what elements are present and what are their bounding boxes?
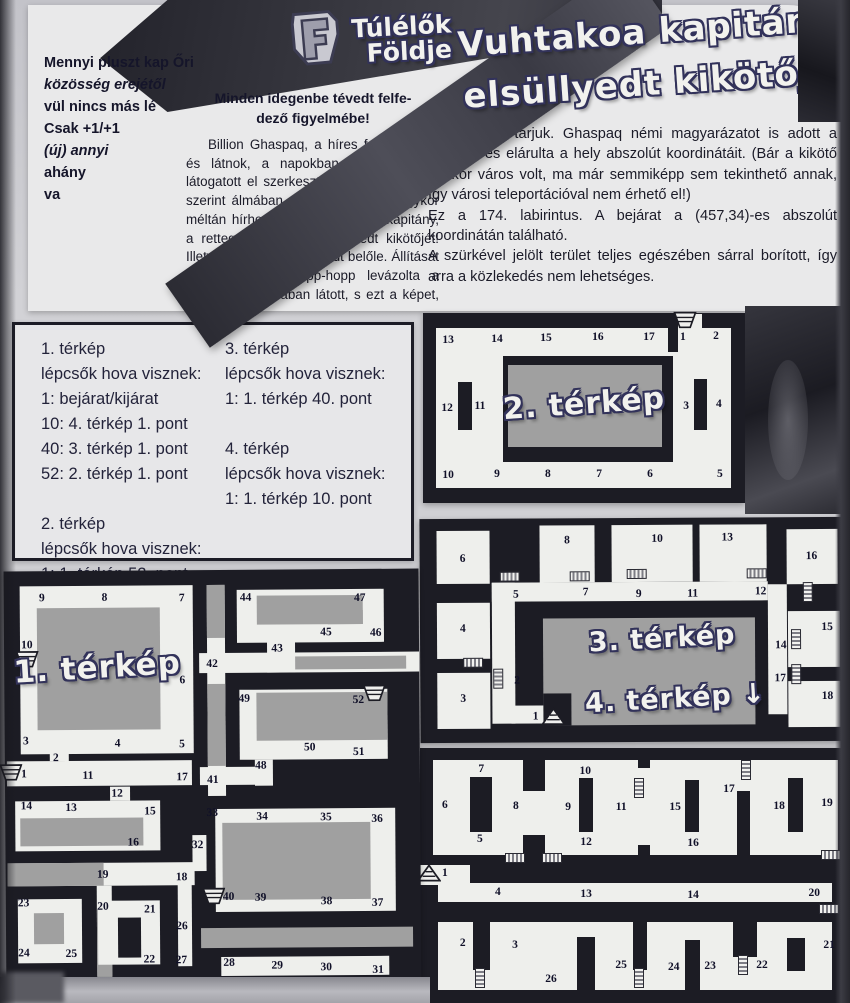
map-point-number: 20 — [808, 887, 820, 899]
legend-line — [225, 412, 386, 437]
stairs-bucket-icon — [363, 685, 386, 702]
page-bottom-edge — [0, 977, 430, 1003]
map-point-number: 26 — [545, 973, 557, 985]
map-point-number: 3 — [683, 400, 689, 412]
map-wall-rect — [458, 382, 472, 430]
map-point-number: 10 — [21, 639, 33, 651]
map-point-number: 9 — [636, 588, 642, 600]
map-point-number: 5 — [477, 833, 483, 845]
door-marker-icon — [634, 778, 644, 798]
legend-line: lépcsők hova visznek: — [225, 362, 386, 387]
map-point-number: 16 — [806, 550, 818, 562]
map-point-number: 7 — [583, 586, 589, 598]
door-marker-icon — [634, 968, 644, 988]
map-point-number: 17 — [723, 783, 735, 795]
map-mud-rect — [222, 822, 371, 900]
map-point-number: 26 — [176, 920, 188, 932]
map-point-number: 14 — [491, 333, 503, 345]
qa-fragment-line: (új) annyi — [44, 140, 196, 162]
map-mud-rect — [201, 927, 413, 949]
logo-wordmark: Túlélők Földje — [351, 11, 453, 66]
map-wall-rect — [694, 379, 707, 430]
door-marker-icon — [741, 760, 751, 780]
map-point-number: 33 — [206, 807, 218, 819]
map-floor-rect — [492, 581, 768, 601]
door-marker-icon — [542, 853, 562, 863]
door-marker-icon — [493, 669, 503, 689]
map-point-number: 25 — [66, 948, 78, 960]
map-mud-rect — [34, 913, 64, 944]
map-point-number: 3 — [512, 939, 518, 951]
map-point-number: 16 — [687, 837, 699, 849]
map-point-number: 4 — [716, 398, 722, 410]
map-point-number: 3 — [23, 735, 29, 747]
qa-fragment-line: ahány — [44, 162, 196, 184]
map-point-number: 12 — [441, 402, 453, 414]
door-marker-icon — [627, 569, 647, 579]
map-point-number: 27 — [176, 954, 188, 966]
map-point-number: 3 — [460, 693, 466, 705]
stairs-pyramid-icon — [417, 864, 441, 882]
door-marker-icon — [791, 629, 801, 649]
map-point-number: 18 — [176, 871, 188, 883]
article-paragraph: A szürkével jelölt terület teljes egészé… — [428, 246, 837, 287]
map-point-number: 51 — [353, 746, 365, 758]
map-mud-rect — [327, 610, 362, 624]
map-point-number: 31 — [372, 964, 384, 976]
map-point-number: 13 — [65, 802, 77, 814]
legend-column-2: 3. térképlépcsők hova visznek:1: 1. térk… — [225, 337, 386, 512]
door-marker-icon — [738, 955, 748, 975]
map-point-number: 38 — [321, 895, 333, 907]
map-point-number: 39 — [255, 892, 267, 904]
map-wall-rect — [118, 918, 142, 958]
page-right-edge — [835, 0, 850, 1003]
map-point-number: 6 — [647, 468, 653, 480]
map-wall-rect — [473, 917, 490, 970]
map-floor-rect — [177, 870, 192, 966]
map-wall-rect — [579, 778, 593, 832]
map-point-number: 40 — [223, 891, 235, 903]
page-edge-smudge — [768, 360, 808, 480]
legend-line: lépcsők hova visznek: — [41, 362, 202, 387]
map-point-number: 15 — [821, 621, 833, 633]
door-marker-icon — [463, 658, 483, 668]
map-point-number: 20 — [97, 901, 109, 913]
map-point-number: 49 — [238, 693, 250, 705]
map-point-number: 37 — [372, 897, 384, 909]
legend-line: 40: 3. térkép 1. pont — [41, 437, 202, 462]
map-point-number: 18 — [822, 690, 834, 702]
map-point-number: 14 — [21, 800, 33, 812]
map-point-number: 35 — [320, 811, 332, 823]
map-point-number: 15 — [540, 332, 552, 344]
map-point-number: 23 — [704, 960, 716, 972]
map-point-number: 11 — [475, 400, 486, 412]
map-point-number: 13 — [580, 888, 592, 900]
door-marker-icon — [803, 582, 813, 602]
map-point-number: 1 — [680, 331, 686, 343]
map-point-number: 9 — [39, 592, 45, 604]
map-point-number: 24 — [18, 947, 30, 959]
map-point-number: 48 — [255, 760, 267, 772]
map-point-number: 21 — [144, 903, 156, 915]
map-point-number: 21 — [823, 939, 835, 951]
map-1: 1234567891011121314151617181920212223242… — [4, 569, 422, 1002]
map-point-number: 23 — [18, 897, 30, 909]
map-point-number: 1 — [442, 867, 448, 879]
map-floor-rect — [510, 791, 545, 834]
map-point-number: 1 — [533, 711, 539, 723]
map-wall-rect — [577, 937, 595, 990]
legend-line: 1. térkép — [41, 337, 202, 362]
map-floor-rect — [7, 760, 192, 786]
map-point-number: 28 — [223, 957, 235, 969]
map-point-number: 47 — [354, 592, 366, 604]
legend-line: 1: 1. térkép 40. pont — [225, 387, 386, 412]
tf-monogram-icon — [278, 2, 353, 72]
map-point-number: 41 — [207, 774, 219, 786]
map-point-number: 7 — [478, 763, 484, 775]
map-floor-rect — [221, 956, 389, 977]
qa-fragment-line: va — [44, 184, 196, 206]
map-point-number: 5 — [179, 738, 185, 750]
map-point-number: 10 — [651, 533, 663, 545]
qa-fragment: Mennyi pluszt kap Őriközösség erejétőlvü… — [44, 52, 196, 302]
map-wall-rect — [470, 777, 492, 832]
map-point-number: 15 — [669, 801, 681, 813]
legend-line: 1: bejárat/kijárat — [41, 387, 202, 412]
map-wall-rect — [787, 938, 805, 971]
legend-line: 4. térkép — [225, 437, 386, 462]
door-marker-icon — [500, 572, 520, 582]
map-point-number: 15 — [144, 805, 156, 817]
map-point-number: 10 — [579, 765, 591, 777]
map-point-number: 1 — [21, 768, 27, 780]
map-point-number: 19 — [821, 797, 833, 809]
map-point-number: 2 — [53, 752, 59, 764]
map-point-number: 16 — [592, 331, 604, 343]
map-point-number: 13 — [442, 334, 454, 346]
logo-line2: Földje — [366, 36, 453, 65]
legend-line: 3. térkép — [225, 337, 386, 362]
map-point-number: 19 — [97, 869, 109, 881]
map-point-number: 14 — [775, 639, 787, 651]
map-point-number: 14 — [687, 889, 699, 901]
legend-line — [41, 487, 202, 512]
map-point-number: 4 — [460, 623, 466, 635]
map-mud-rect — [207, 585, 225, 638]
map-point-number: 8 — [513, 800, 519, 812]
qa-fragment-line: vül nincs más lé — [44, 96, 196, 118]
intro-line1: Minden idegenbe tévedt felfe- — [180, 88, 446, 108]
legend-line: lépcsők hova visznek: — [41, 537, 202, 562]
door-marker-icon — [747, 568, 767, 578]
qa-fragment-line: közösség erejétől — [44, 74, 196, 96]
stairs-pyramid-icon — [541, 708, 565, 726]
map-point-number: 2 — [713, 330, 719, 342]
map-point-number: 16 — [127, 837, 139, 849]
scanned-magazine-page: { "colors": { "paper": "#c9c9cf", "panel… — [0, 0, 850, 1003]
page-left-edge — [0, 0, 16, 1003]
map-point-number: 32 — [192, 839, 204, 851]
door-marker-icon — [475, 968, 485, 988]
map-point-number: 11 — [687, 588, 698, 600]
map-point-number: 2 — [514, 675, 520, 687]
map-point-number: 52 — [353, 694, 365, 706]
door-marker-icon — [569, 571, 589, 581]
map-point-number: 6 — [460, 553, 466, 565]
map-point-number: 5 — [717, 468, 723, 480]
map-point-number: 46 — [370, 627, 382, 639]
legend-line: 1: 1. térkép 10. pont — [225, 487, 386, 512]
map-point-number: 24 — [668, 961, 680, 973]
door-marker-icon — [505, 853, 525, 863]
map-point-number: 50 — [304, 741, 316, 753]
map-mud-rect — [287, 656, 406, 670]
map-point-number: 10 — [442, 469, 454, 481]
map-point-number: 25 — [615, 959, 627, 971]
map-wall-rect — [788, 778, 803, 832]
legend-box: 1. térképlépcsők hova visznek:1: bejárat… — [12, 322, 414, 561]
map-point-number: 12 — [755, 585, 767, 597]
article-paragraph: Ez a 174. labirintus. A bejárat a (457,3… — [428, 206, 837, 247]
map-mud-rect — [8, 863, 104, 886]
legend-line: lépcsők hova visznek: — [225, 462, 386, 487]
map-point-number: 8 — [102, 592, 108, 604]
map-point-number: 45 — [320, 626, 332, 638]
door-marker-icon — [791, 664, 801, 684]
map-point-number: 8 — [564, 534, 570, 546]
map-wall-rect — [633, 922, 647, 970]
map-floor-rect — [492, 582, 516, 723]
map-point-number: 29 — [271, 960, 283, 972]
map-point-number: 30 — [320, 961, 332, 973]
map-wall-rect — [733, 922, 757, 957]
legend-line: 52: 2. térkép 1. pont — [41, 462, 202, 487]
map-point-number: 36 — [371, 813, 383, 825]
map-3: 1234567891011121314151617183. térkép4. t… — [419, 517, 845, 743]
qa-fragment-line: Mennyi pluszt kap Őri — [44, 52, 196, 74]
map-point-number: 8 — [545, 468, 551, 480]
map-2: 12345678910111213141516172. térkép — [423, 313, 745, 503]
map-point-number: 17 — [176, 771, 188, 783]
map-point-number: 2 — [460, 937, 466, 949]
tulelok-foldje-logo-badge — [278, 2, 354, 77]
map-point-number: 6 — [442, 799, 448, 811]
map-mud-rect — [207, 684, 225, 766]
map-point-number: 43 — [271, 643, 283, 655]
legend-line: 2. térkép — [41, 512, 202, 537]
map-point-number: 22 — [756, 959, 768, 971]
map-point-number: 9 — [565, 801, 571, 813]
map-mud-rect — [20, 817, 143, 846]
map-point-number: 13 — [721, 532, 733, 544]
map-point-number: 5 — [513, 589, 519, 601]
map-point-number: 12 — [580, 836, 592, 848]
map-point-number: 7 — [179, 592, 185, 604]
qa-fragment-line: Csak +1/+1 — [44, 118, 196, 140]
map-point-number: 11 — [616, 801, 627, 813]
map-point-number: 9 — [494, 468, 500, 480]
map-point-number: 17 — [643, 331, 655, 343]
map-point-number: 34 — [256, 810, 268, 822]
map-point-number: 17 — [774, 672, 786, 684]
legend-column-1: 1. térképlépcsők hova visznek:1: bejárat… — [41, 337, 202, 587]
map-point-number: 4 — [495, 886, 501, 898]
map-point-number: 7 — [596, 468, 602, 480]
map-point-number: 22 — [144, 954, 156, 966]
map-4: 1234567891011121314151617181920212223242… — [420, 748, 848, 1003]
map-point-number: 12 — [111, 788, 123, 800]
map-point-number: 18 — [773, 800, 785, 812]
map-point-number: 44 — [240, 592, 252, 604]
map-point-number: 4 — [115, 738, 121, 750]
map-wall-rect — [685, 780, 699, 832]
stairs-bucket-icon — [674, 311, 697, 328]
map-point-number: 11 — [82, 770, 93, 782]
map-wall-rect — [685, 940, 700, 990]
map-floor-rect — [788, 681, 840, 727]
legend-line: 10: 4. térkép 1. pont — [41, 412, 202, 437]
map-point-number: 42 — [206, 658, 218, 670]
